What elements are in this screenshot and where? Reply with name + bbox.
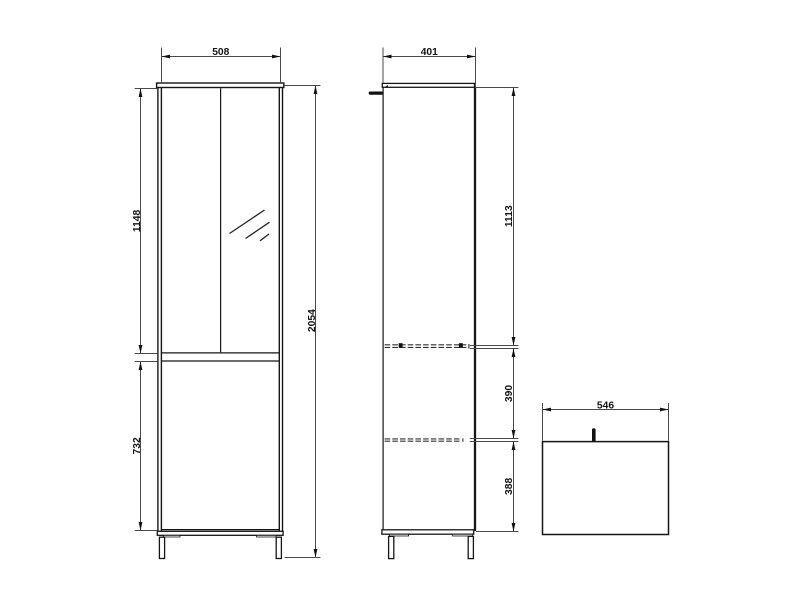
svg-text:508: 508 xyxy=(212,47,229,58)
svg-text:546: 546 xyxy=(597,401,614,412)
svg-text:2054: 2054 xyxy=(307,309,318,332)
svg-text:1113: 1113 xyxy=(504,205,515,227)
svg-text:732: 732 xyxy=(132,437,143,454)
svg-text:390: 390 xyxy=(504,385,515,402)
svg-text:401: 401 xyxy=(421,47,438,58)
svg-text:1148: 1148 xyxy=(132,209,143,232)
svg-text:388: 388 xyxy=(504,478,515,495)
